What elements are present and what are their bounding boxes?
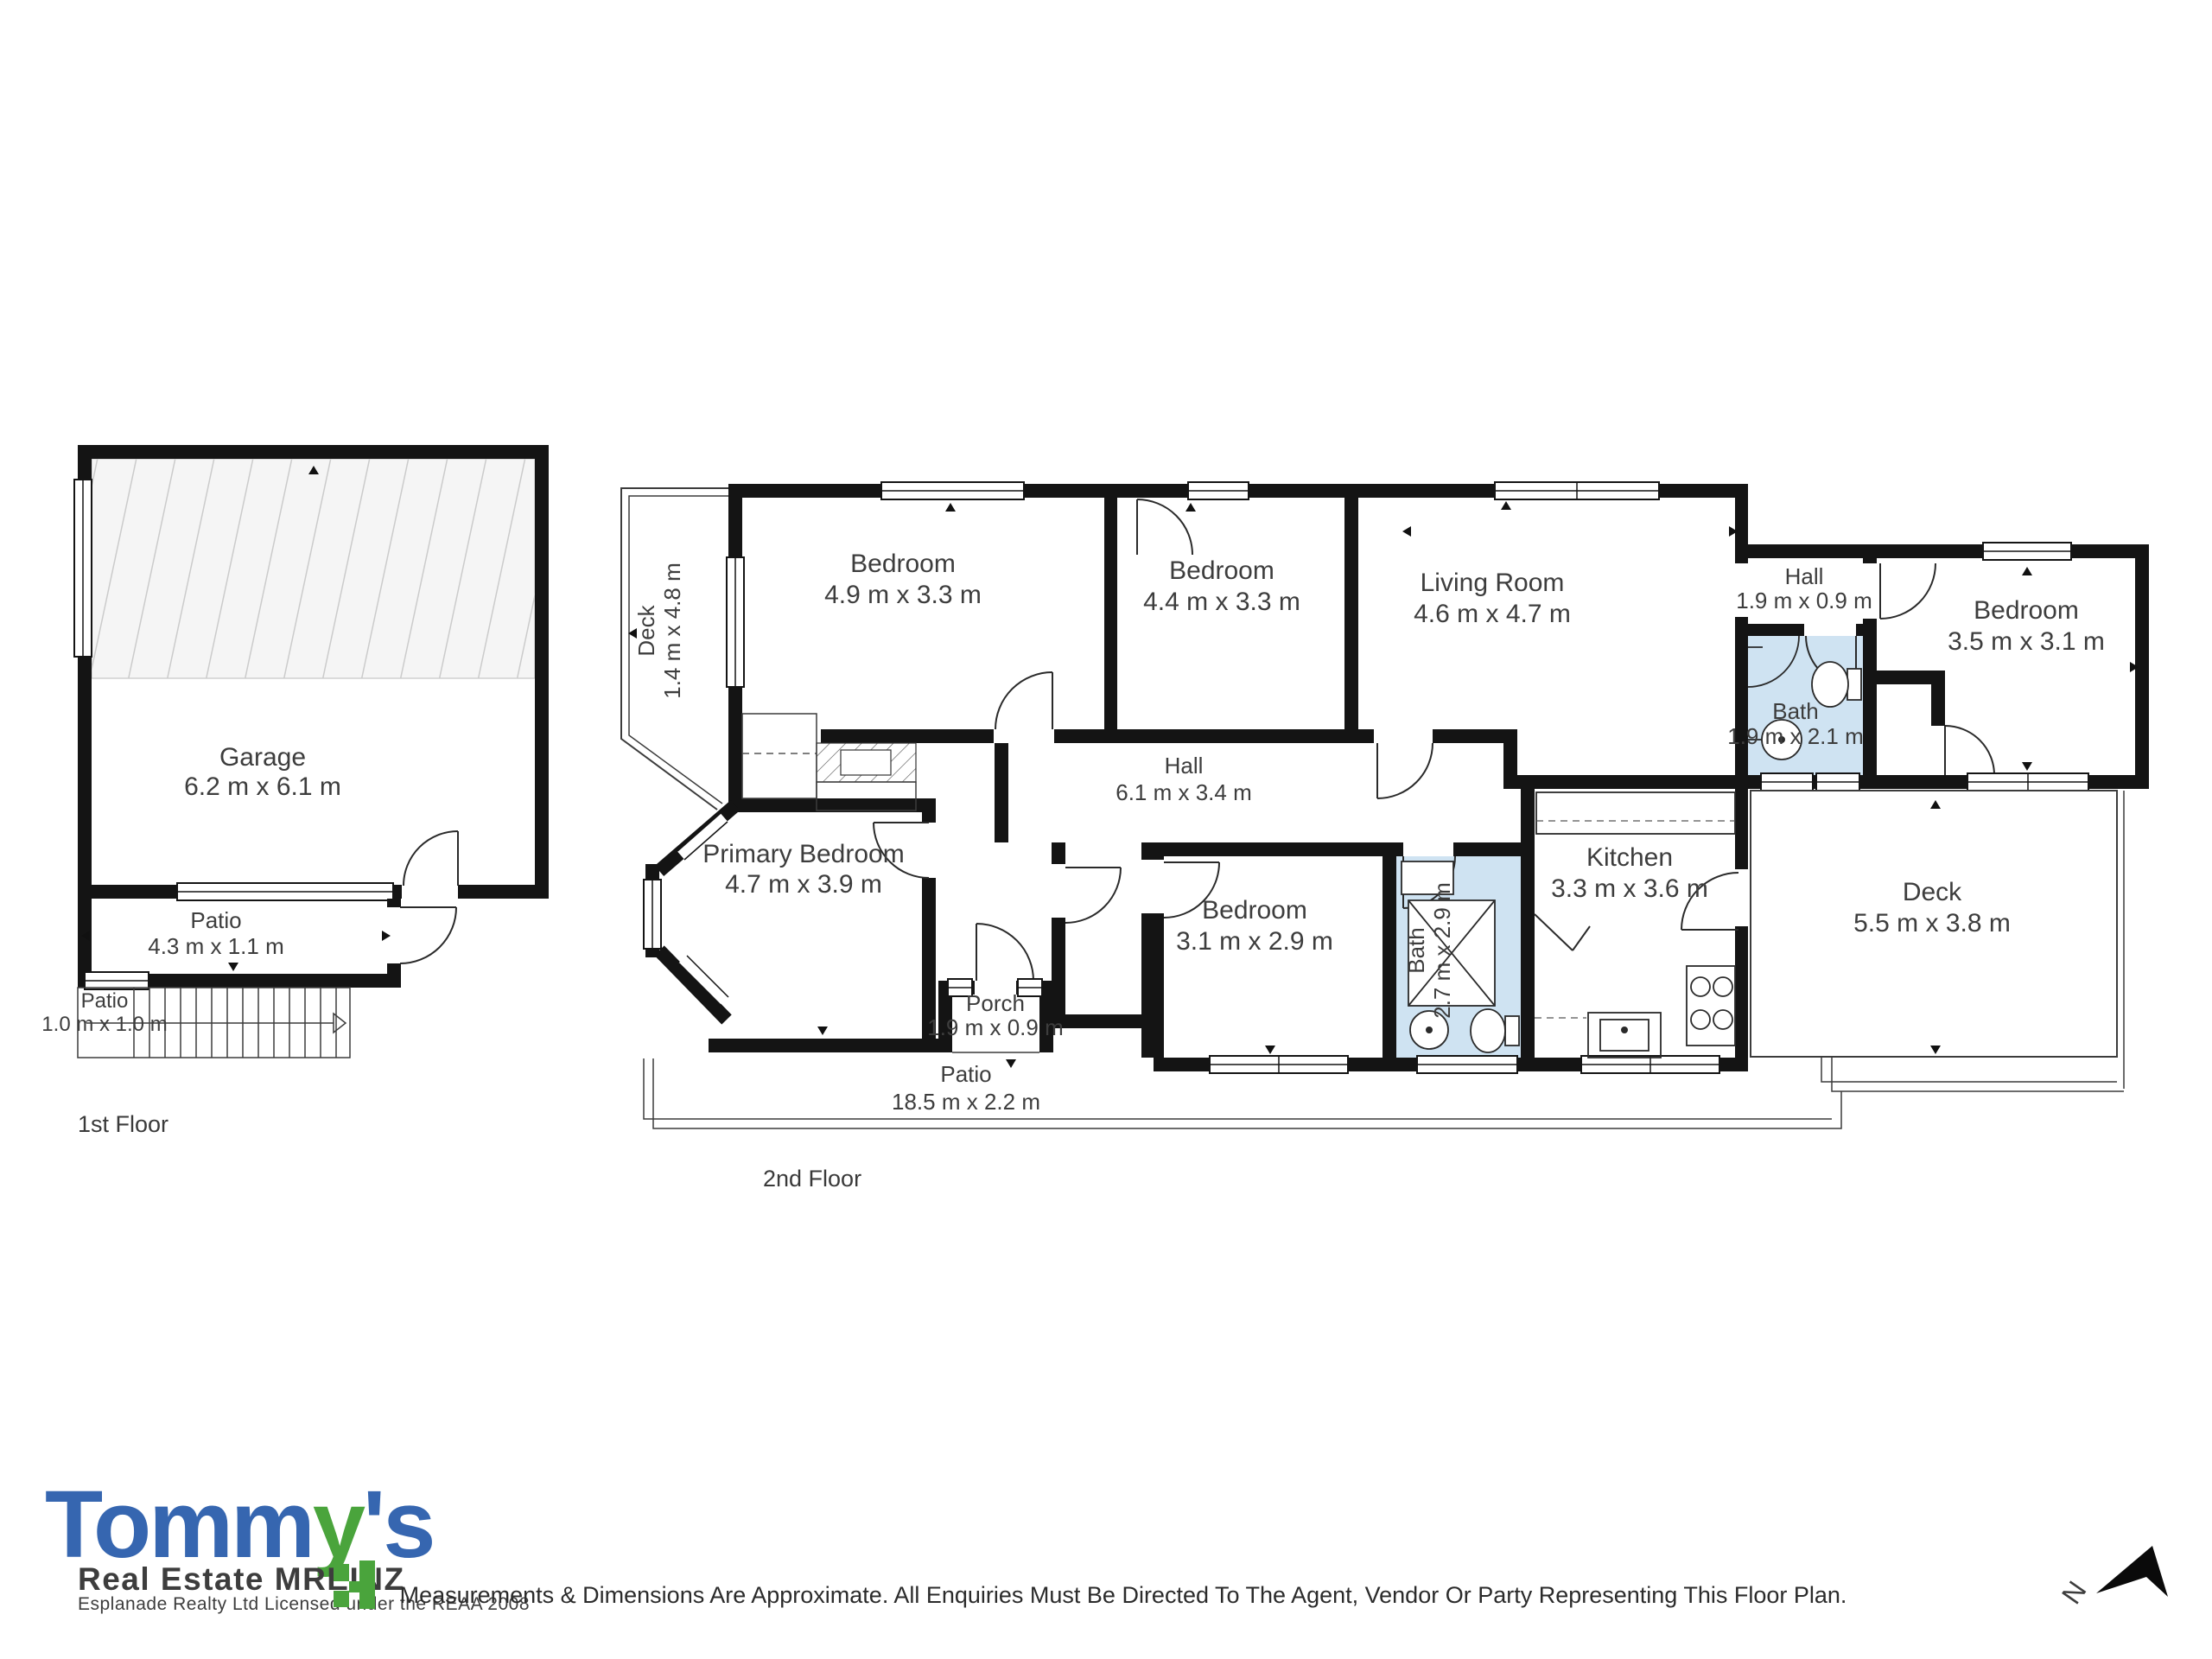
- deck-right-label: Deck: [1903, 878, 1962, 906]
- bath-main-label: Bath: [1403, 927, 1429, 974]
- hall-small-dims: 1.9 m x 0.9 m: [1736, 588, 1872, 613]
- bedroom-a-dims: 4.9 m x 3.3 m: [824, 581, 982, 609]
- floorplan-page: Garage 6.2 m x 6.1 m Patio 4.3 m x 1.1 m…: [0, 0, 2212, 1659]
- compass: N: [2056, 1546, 2168, 1610]
- deck-left-label: Deck: [633, 604, 659, 656]
- patio-long-dims: 18.5 m x 2.2 m: [892, 1089, 1040, 1115]
- deck-right-dims: 5.5 m x 3.8 m: [1853, 909, 2011, 938]
- hall-main-dims: 6.1 m x 3.4 m: [1116, 779, 1252, 805]
- garage-roof-hatch-lines: [92, 459, 535, 678]
- stairs-upper: [742, 714, 916, 810]
- deck-left-label-group: Deck 1.4 m x 4.8 m: [633, 563, 685, 699]
- garage-door-arc: [404, 831, 458, 886]
- hall-small-label: Hall: [1785, 563, 1824, 589]
- kitchen-label: Kitchen: [1586, 843, 1673, 872]
- primary-bedroom-label: Primary Bedroom: [702, 840, 904, 868]
- toilet-tank-icon: [1847, 669, 1861, 700]
- north-arrow-icon: [2096, 1546, 2168, 1597]
- porch-dims: 1.9 m x 0.9 m: [927, 1014, 1064, 1040]
- kitchen-fixtures: [1535, 792, 1735, 1058]
- bath-small-label: Bath: [1772, 698, 1819, 724]
- bedroom-c-label: Bedroom: [1974, 596, 2079, 625]
- disclaimer-text: Measurements & Dimensions Are Approximat…: [400, 1582, 1847, 1608]
- bedroom-b-label: Bedroom: [1169, 556, 1274, 585]
- toilet-icon: [1471, 1009, 1505, 1052]
- bedroom-c-dims: 3.5 m x 3.1 m: [1948, 627, 2105, 656]
- patio-b-dims: 1.0 m x 1.0 m: [41, 1013, 167, 1036]
- patio-a-label: Patio: [190, 907, 241, 933]
- garage-label: Garage: [219, 743, 306, 772]
- bedroom-a-label: Bedroom: [850, 550, 956, 578]
- first-floor-title: 1st Floor: [78, 1111, 168, 1137]
- deck-left-dims: 1.4 m x 4.8 m: [659, 563, 685, 699]
- first-floor-plan: Garage 6.2 m x 6.1 m Patio 4.3 m x 1.1 m…: [41, 445, 549, 1137]
- patio-a-dims: 4.3 m x 1.1 m: [148, 933, 284, 959]
- patio-a-door-arc: [400, 907, 456, 963]
- compass-n-label: N: [2056, 1575, 2093, 1610]
- second-floor-title: 2nd Floor: [763, 1166, 861, 1192]
- bedroom-d-dims: 3.1 m x 2.9 m: [1176, 927, 1333, 956]
- bedroom-d-label: Bedroom: [1202, 896, 1307, 925]
- bath-main-dims: 2.7 m x 2.9 m: [1429, 882, 1455, 1019]
- patio-long-label: Patio: [940, 1061, 991, 1087]
- bedroom-b-dims: 4.4 m x 3.3 m: [1143, 588, 1300, 616]
- living-room-label: Living Room: [1421, 569, 1565, 597]
- patio-b-label: Patio: [81, 989, 129, 1013]
- floorplan-canvas: Garage 6.2 m x 6.1 m Patio 4.3 m x 1.1 m…: [0, 0, 2212, 1659]
- garage-door-gap: [402, 885, 458, 899]
- kitchen-dims: 3.3 m x 3.6 m: [1551, 874, 1708, 903]
- porch-label: Porch: [966, 990, 1025, 1016]
- toilet-tank-icon: [1505, 1016, 1519, 1046]
- living-room-dims: 4.6 m x 4.7 m: [1414, 600, 1571, 628]
- garage-dims: 6.2 m x 6.1 m: [184, 772, 341, 801]
- hall-main-label: Hall: [1165, 753, 1204, 779]
- primary-bedroom-dims: 4.7 m x 3.9 m: [725, 870, 882, 899]
- bath-small-dims: 1.9 m x 2.1 m: [1727, 723, 1864, 749]
